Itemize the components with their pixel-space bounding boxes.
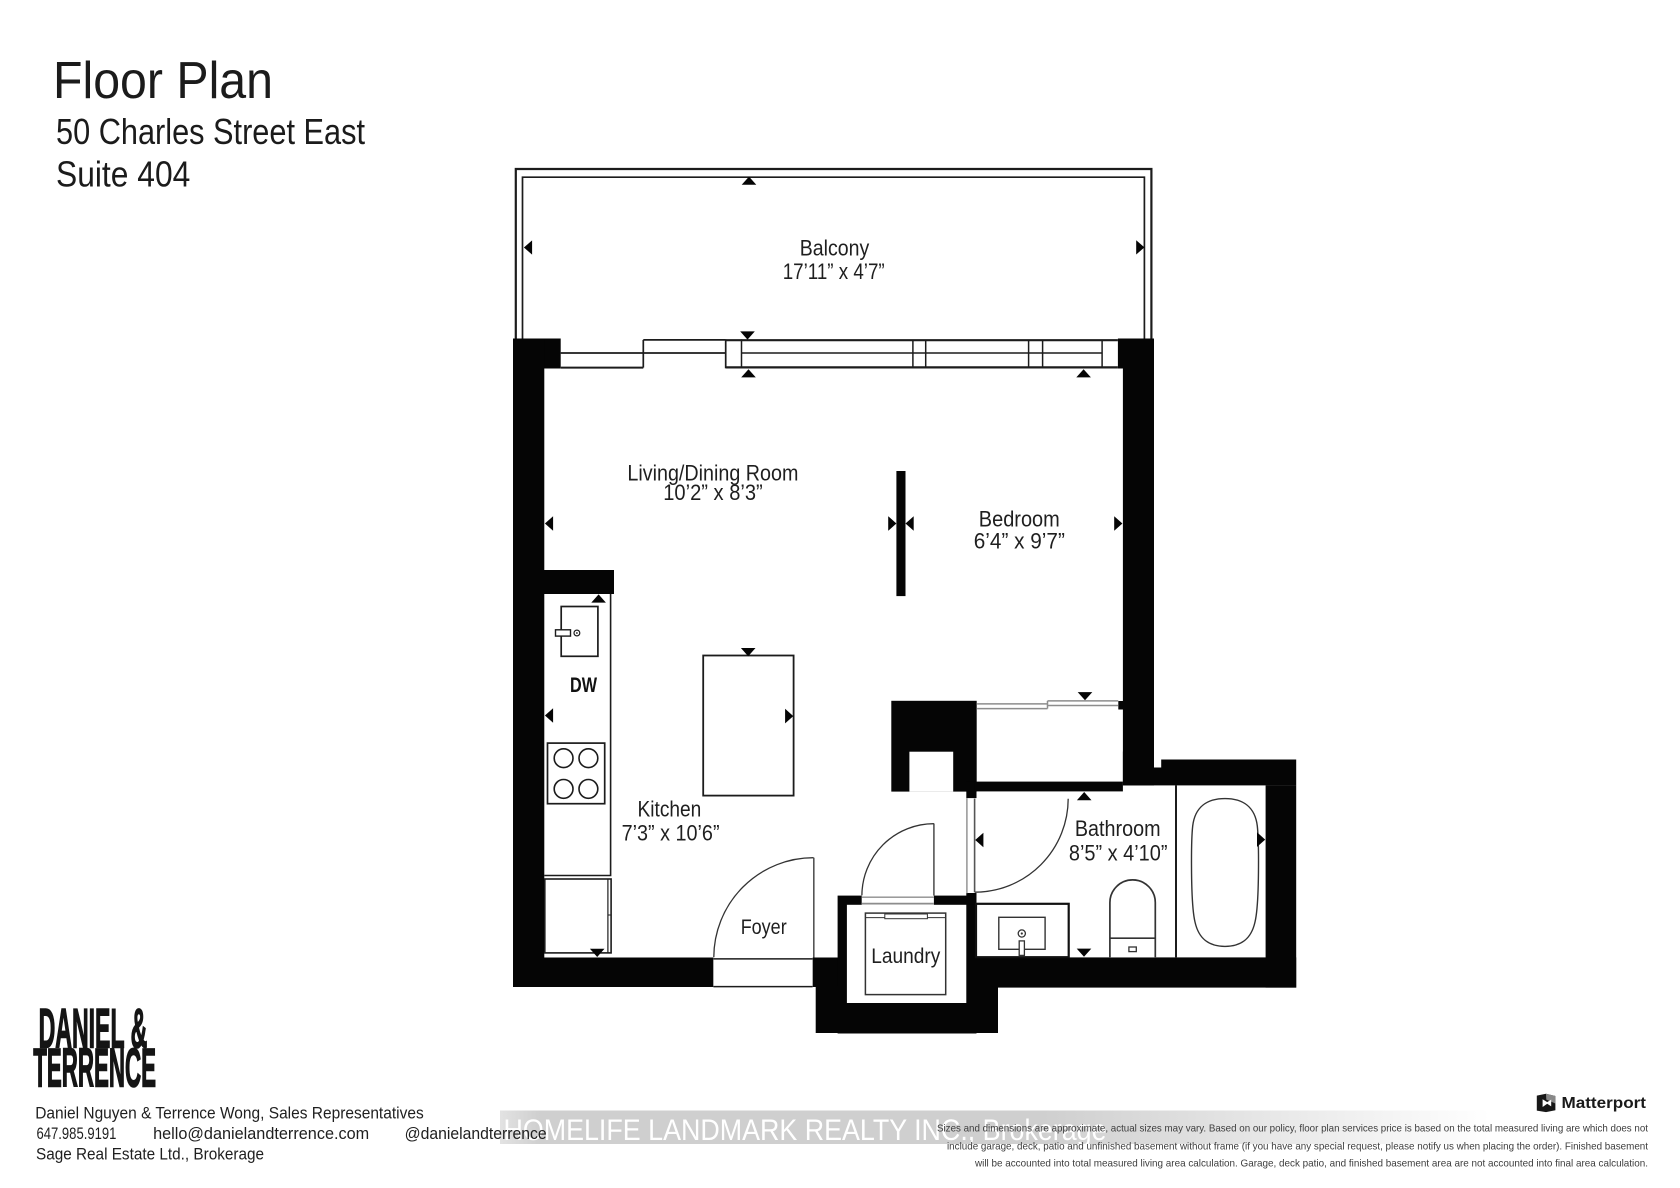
svg-text:hello@danielandterrence.com: hello@danielandterrence.com bbox=[153, 1124, 369, 1143]
svg-text:Sage Real Estate Ltd., Brokera: Sage Real Estate Ltd., Brokerage bbox=[36, 1145, 264, 1164]
svg-text:TERRENCE: TERRENCE bbox=[33, 1037, 156, 1098]
svg-text:17’11” x 4’7”: 17’11” x 4’7” bbox=[783, 259, 885, 284]
svg-text:Floor Plan: Floor Plan bbox=[53, 51, 273, 109]
svg-text:Suite 404: Suite 404 bbox=[56, 154, 190, 195]
svg-text:Kitchen: Kitchen bbox=[638, 797, 702, 822]
svg-text:50 Charles Street East: 50 Charles Street East bbox=[56, 111, 365, 152]
svg-text:Sizes and dimensions are appro: Sizes and dimensions are approximate, ac… bbox=[937, 1124, 1648, 1135]
svg-text:6’4” x 9’7”: 6’4” x 9’7” bbox=[974, 529, 1065, 554]
svg-text:8’5” x 4’10”: 8’5” x 4’10” bbox=[1069, 841, 1168, 866]
svg-text:Foyer: Foyer bbox=[741, 916, 787, 939]
svg-text:will be accounted into total m: will be accounted into total measured li… bbox=[974, 1159, 1648, 1170]
svg-text:Matterport: Matterport bbox=[1562, 1095, 1647, 1112]
svg-text:Balcony: Balcony bbox=[800, 236, 870, 261]
svg-text:7’3” x 10’6”: 7’3” x 10’6” bbox=[622, 820, 720, 845]
svg-text:Daniel Nguyen & Terrence Wong,: Daniel Nguyen & Terrence Wong, Sales Rep… bbox=[35, 1103, 424, 1122]
svg-text:DW: DW bbox=[570, 674, 597, 697]
svg-text:Bedroom: Bedroom bbox=[979, 506, 1060, 531]
svg-text:@danielandterrence: @danielandterrence bbox=[405, 1124, 547, 1143]
svg-text:include garage, deck, patio an: include garage, deck, patio and unfinish… bbox=[947, 1141, 1648, 1152]
svg-text:10’2” x 8’3”: 10’2” x 8’3” bbox=[663, 480, 763, 505]
svg-text:Bathroom: Bathroom bbox=[1075, 816, 1161, 841]
svg-text:647.985.9191: 647.985.9191 bbox=[37, 1124, 117, 1143]
svg-text:Laundry: Laundry bbox=[871, 945, 941, 968]
